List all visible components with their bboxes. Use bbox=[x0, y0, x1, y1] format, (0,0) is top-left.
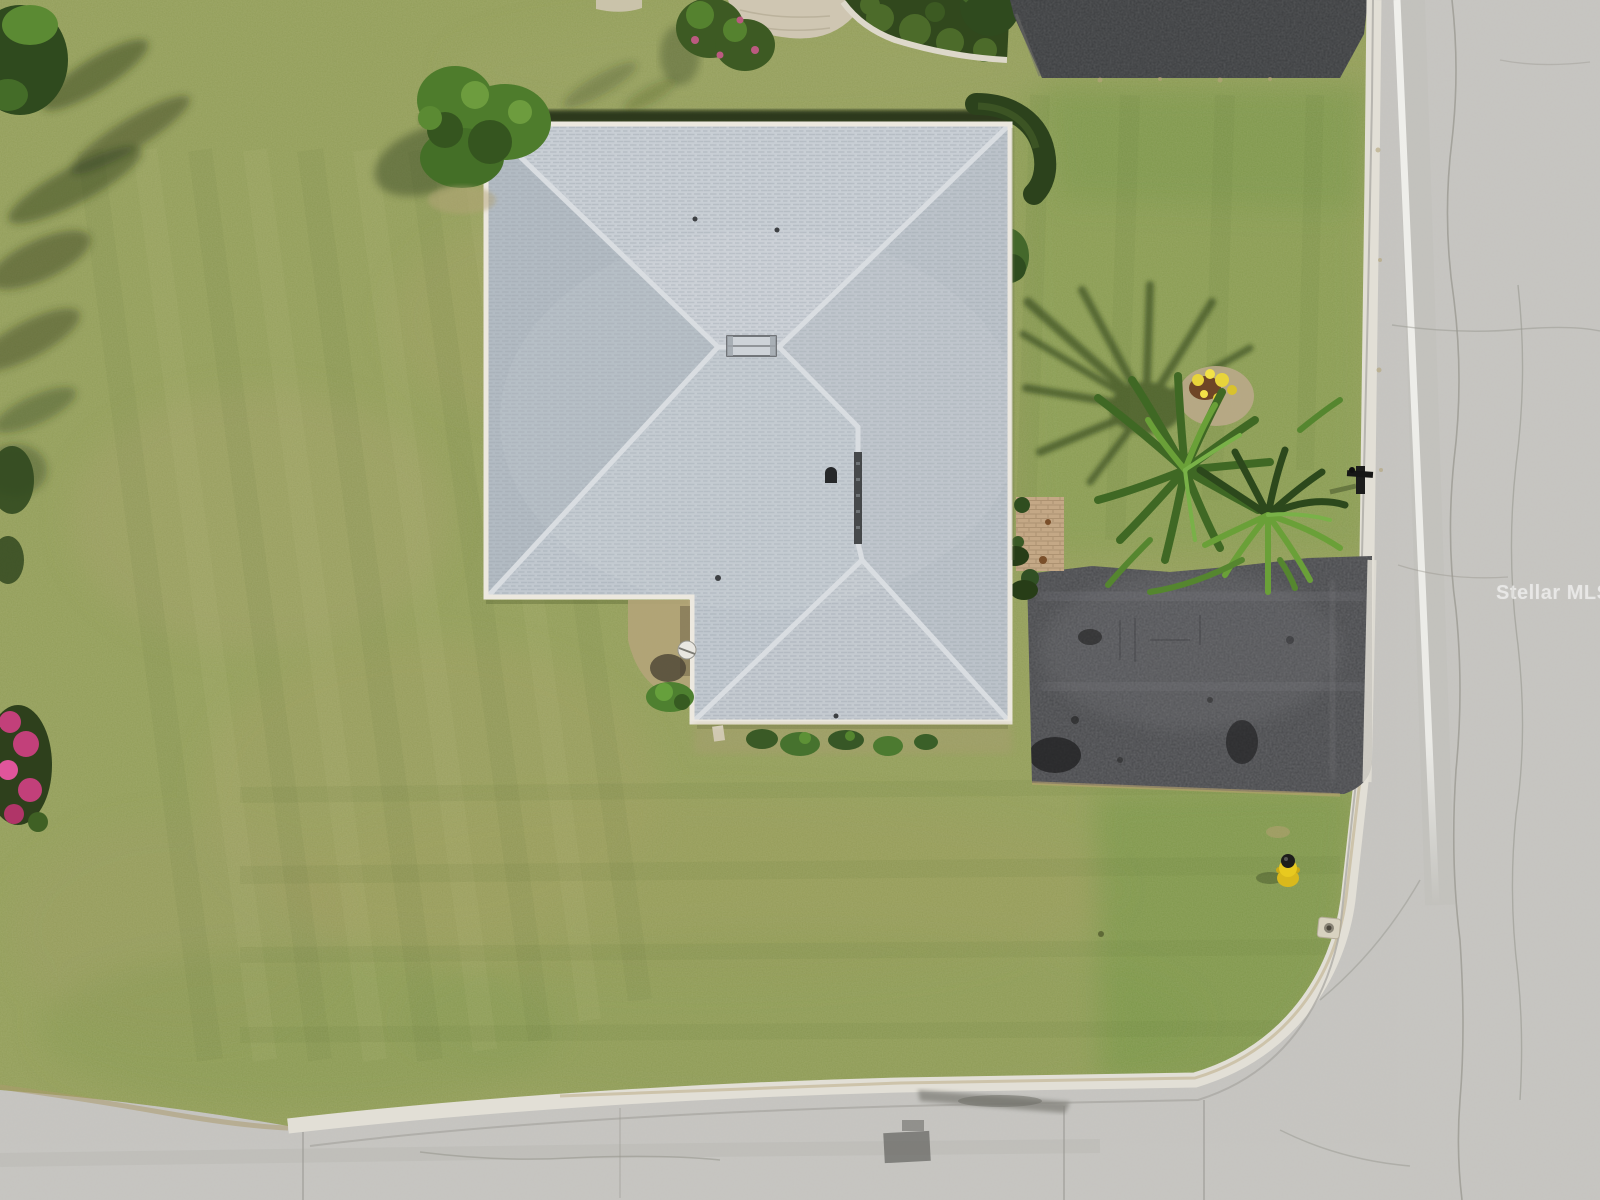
driveway-road-joint bbox=[1367, 560, 1372, 782]
aerial-scene bbox=[0, 0, 1600, 1200]
lawn-dirt-spot bbox=[1266, 826, 1290, 838]
ridge-vent bbox=[854, 452, 862, 544]
utility-marker bbox=[1317, 917, 1341, 939]
neighbor-driveway bbox=[1000, 0, 1380, 90]
vent-cap bbox=[825, 467, 837, 483]
satellite-dish bbox=[678, 641, 696, 659]
roof-center-vent bbox=[727, 336, 776, 356]
dirt-stain bbox=[650, 654, 686, 682]
aerial-photo: Stellar MLS bbox=[0, 0, 1600, 1200]
notch-bush bbox=[646, 682, 694, 712]
watermark: Stellar MLS bbox=[1496, 582, 1600, 605]
lawn-speck bbox=[1098, 931, 1104, 937]
